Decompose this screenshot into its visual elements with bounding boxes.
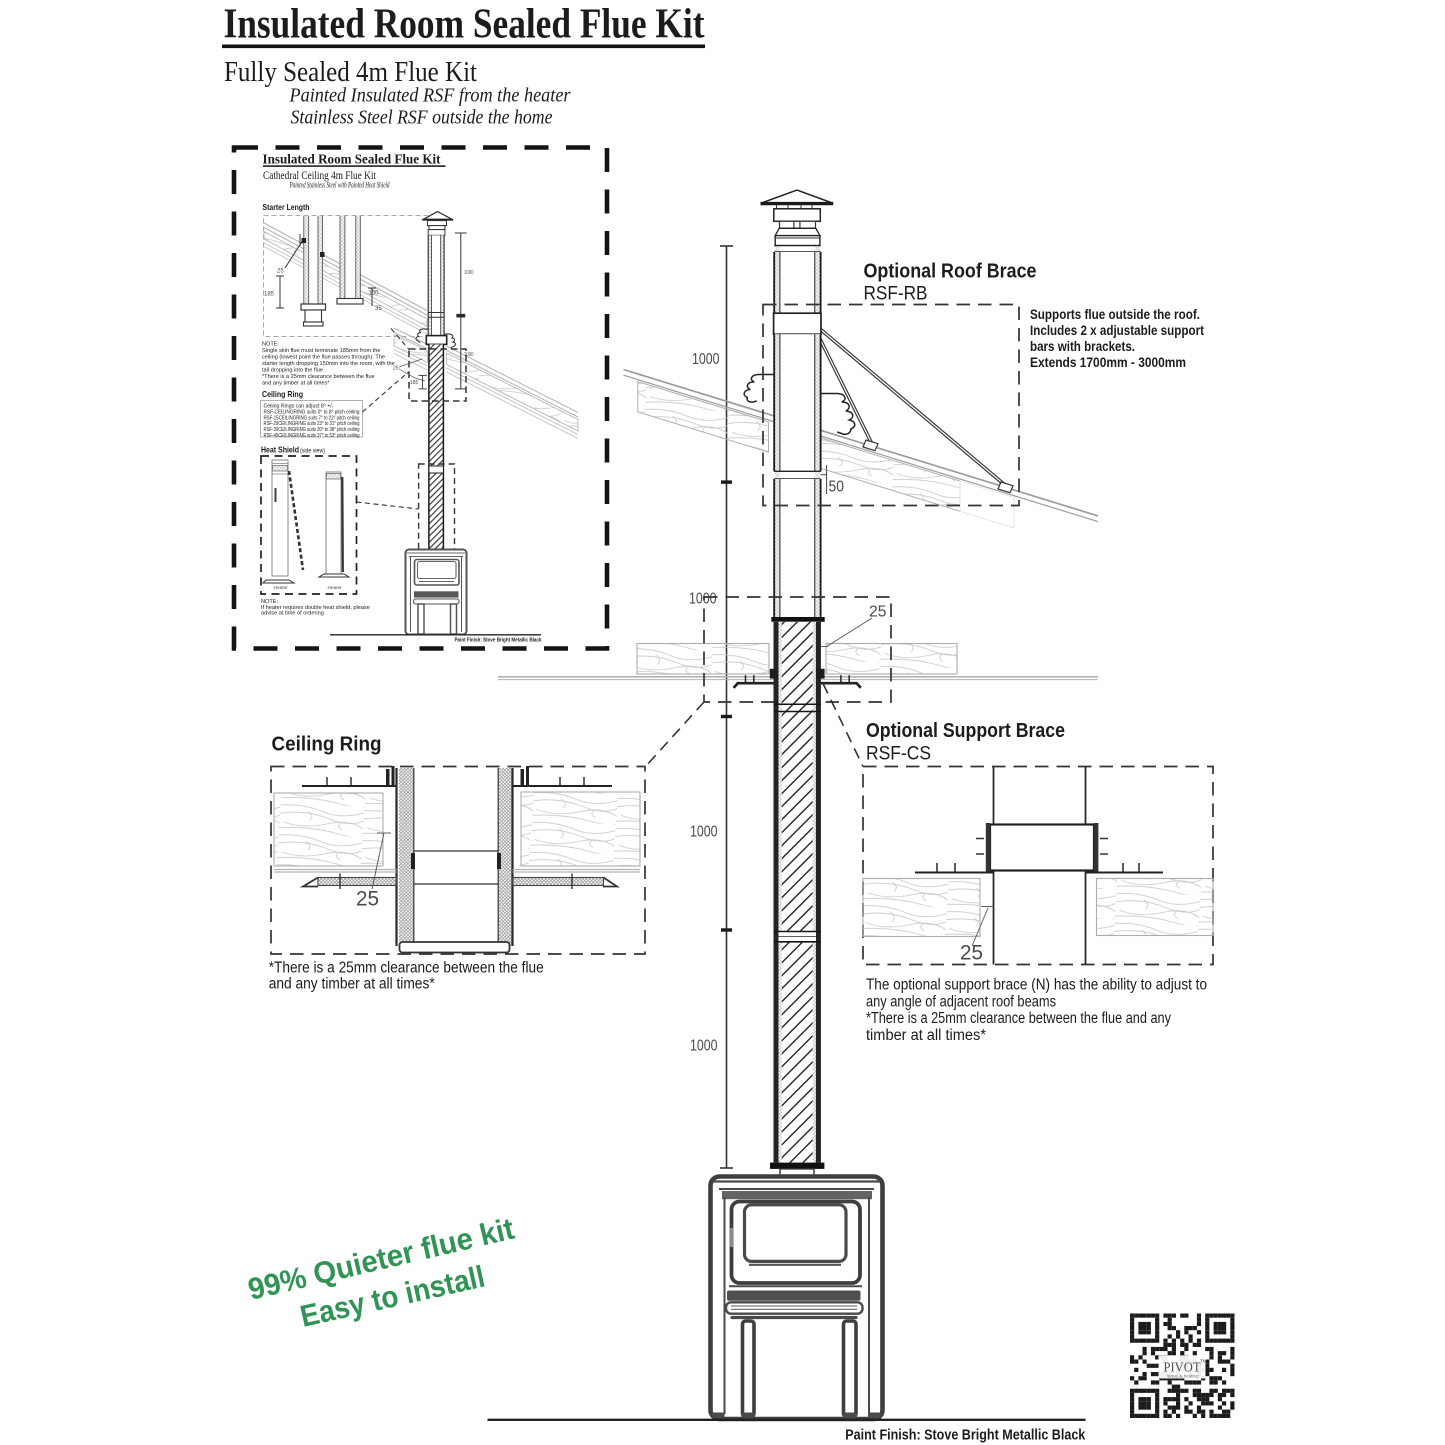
svg-text:1000: 1000	[692, 351, 720, 368]
svg-text:Optional Support Brace: Optional Support Brace	[866, 720, 1065, 742]
svg-text:*There is a 25mm clearance bet: *There is a 25mm clearance between the f…	[262, 374, 375, 380]
svg-text:Heat Shield: Heat Shield	[261, 446, 299, 455]
svg-text:stove & heating: stove & heating	[1167, 1374, 1199, 1379]
svg-text:Ceiling Ring: Ceiling Ring	[272, 734, 382, 756]
svg-text:Heater: Heater	[274, 585, 289, 591]
svg-text:The optional support brace (N): The optional support brace (N) has the a…	[866, 977, 1207, 994]
svg-text:NOTE:: NOTE:	[262, 342, 280, 348]
svg-text:advise at time of ordering: advise at time of ordering	[261, 611, 324, 617]
svg-text:starter length dropping 150mm: starter length dropping 150mm into the r…	[262, 361, 395, 367]
svg-text:*There is a 25mm clearance bet: *There is a 25mm clearance between the f…	[866, 1010, 1171, 1027]
svg-text:Heater: Heater	[328, 585, 343, 591]
svg-text:Ceiling Ring: Ceiling Ring	[262, 390, 303, 399]
svg-text:Insulated Room Sealed Flue Kit: Insulated Room Sealed Flue Kit	[224, 2, 705, 48]
svg-text:25: 25	[356, 888, 379, 911]
svg-text:Fully Sealed 4m Flue Kit: Fully Sealed 4m Flue Kit	[224, 56, 477, 88]
svg-text:185: 185	[264, 292, 275, 298]
svg-text:35: 35	[375, 306, 382, 312]
svg-text:185: 185	[410, 380, 419, 386]
svg-text:Stainless Steel RSF outside th: Stainless Steel RSF outside the home	[291, 107, 553, 129]
svg-text:*There is a 25mm clearance bet: *There is a 25mm clearance between the f…	[269, 960, 544, 977]
svg-text:25: 25	[393, 366, 399, 372]
svg-text:Includes 2 x adjustable suppor: Includes 2 x adjustable support	[1030, 322, 1204, 338]
svg-text:Painted Stainless Steel with P: Painted Stainless Steel with Painted Hea…	[289, 180, 390, 190]
svg-text:ceiling (lowest point the flue: ceiling (lowest point the flue passes th…	[262, 355, 385, 361]
svg-text:Insulated Room Sealed Flue Kit: Insulated Room Sealed Flue Kit	[263, 152, 441, 167]
svg-text:any angle of adjacent roof bea: any angle of adjacent roof beams	[866, 993, 1056, 1010]
svg-text:Single skin flue must terminat: Single skin flue must terminate 185mm fr…	[262, 348, 380, 354]
svg-text:and any timber at all times*: and any timber at all times*	[262, 381, 330, 387]
svg-text:Starter Length: Starter Length	[263, 203, 310, 212]
svg-text:Paint Finish: Stove Bright Met: Paint Finish: Stove Bright Metallic Blac…	[845, 1427, 1085, 1444]
svg-text:timber at all times*: timber at all times*	[866, 1027, 986, 1044]
svg-text:50: 50	[829, 479, 845, 496]
svg-text:150: 150	[369, 291, 380, 297]
svg-text:Paint Finish: Stove Bright Met: Paint Finish: Stove Bright Metallic Blac…	[455, 638, 543, 644]
svg-text:Optional Roof Brace: Optional Roof Brace	[864, 261, 1037, 283]
svg-text:tail dropping into the flue: tail dropping into the flue	[262, 368, 323, 374]
svg-text:25: 25	[960, 942, 983, 965]
svg-text:1000: 1000	[690, 824, 718, 841]
svg-text:1000: 1000	[690, 1038, 718, 1055]
svg-text:Painted Insulated RSF from the: Painted Insulated RSF from the heater	[289, 85, 571, 107]
svg-text:25: 25	[277, 269, 284, 275]
svg-text:RSF-RB: RSF-RB	[864, 283, 928, 305]
svg-text:1000: 1000	[464, 270, 474, 276]
svg-text:and any timber at all times*: and any timber at all times*	[269, 975, 435, 992]
svg-text:RSF-CS: RSF-CS	[866, 743, 931, 765]
svg-text:(side view): (side view)	[300, 449, 325, 455]
svg-text:1000: 1000	[689, 591, 717, 608]
svg-text:Supports flue outside the roof: Supports flue outside the roof.	[1030, 306, 1200, 322]
svg-text:TM: TM	[1200, 1359, 1207, 1364]
svg-text:bars with brackets.: bars with brackets.	[1030, 338, 1135, 354]
svg-text:RSF-45CEILINGRING suits 37° to: RSF-45CEILINGRING suits 37° to 53° pitch…	[264, 433, 360, 439]
svg-text:Extends 1700mm - 3000mm: Extends 1700mm - 3000mm	[1030, 354, 1186, 370]
